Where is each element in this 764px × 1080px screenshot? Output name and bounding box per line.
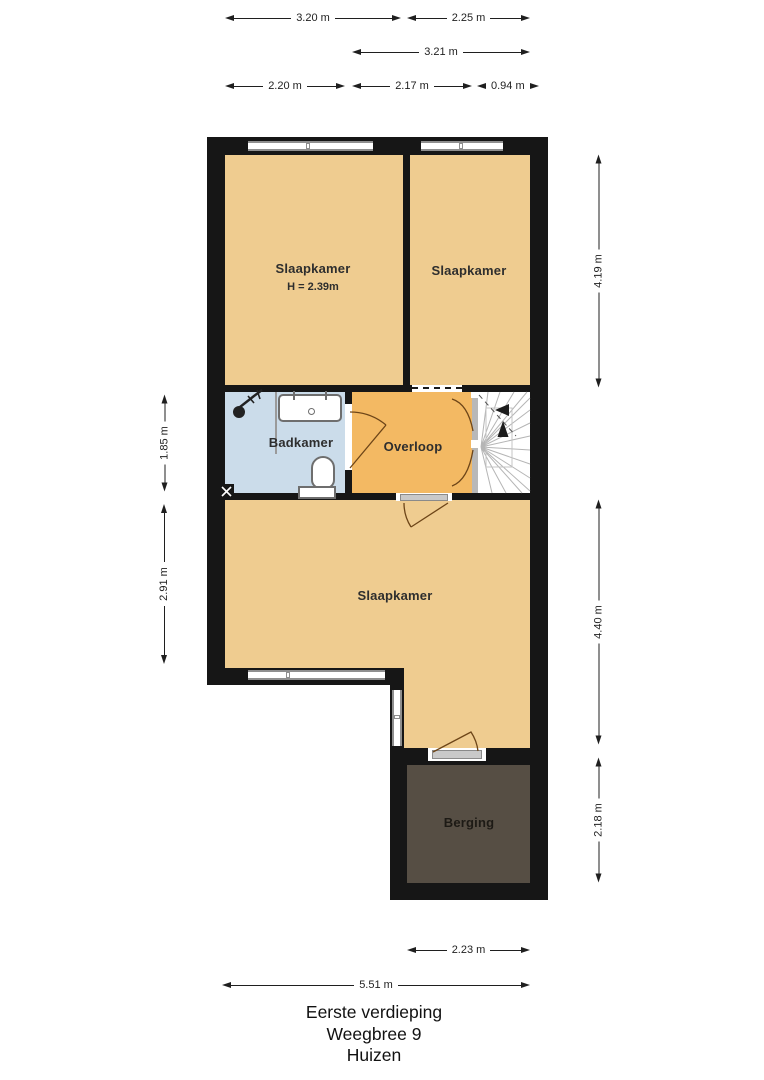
- dim-line: [335, 18, 392, 19]
- arrow-left-icon: [161, 655, 167, 664]
- dim-bottom-5-51: 5.51 m: [222, 978, 530, 992]
- window-mullion: [394, 715, 400, 719]
- window-mullion: [286, 672, 290, 678]
- dim-line: [598, 766, 599, 798]
- slaapkamer-3-door-threshold: [400, 494, 448, 501]
- dim-top-3-21: 3.21 m: [352, 45, 530, 59]
- dashed-opening-line: [412, 387, 462, 389]
- dim-line: [164, 465, 165, 483]
- city-line: Huizen: [306, 1045, 442, 1067]
- faucet-icon: [293, 391, 295, 400]
- dim-line: [164, 513, 165, 562]
- room-label-slaapkamer-2: Slaapkamer: [432, 263, 507, 278]
- drain-icon: [308, 408, 315, 415]
- window-slaapkamer-3: [248, 670, 385, 680]
- arrow-right-icon: [596, 154, 602, 163]
- dim-label: 2.23 m: [447, 944, 491, 956]
- dim-right-4-19: 4.19 m: [592, 155, 606, 388]
- dim-right-4-40: 4.40 m: [592, 500, 606, 745]
- dim-label: 2.20 m: [263, 80, 307, 92]
- room-height-note: H = 2.39m: [287, 281, 339, 293]
- stair-door-jamb: [471, 440, 479, 448]
- window-slaapkamer-2: [421, 141, 503, 151]
- arrow-right-icon: [596, 499, 602, 508]
- floor-title: Eerste verdieping: [306, 1002, 442, 1024]
- toilet-cistern: [298, 486, 336, 499]
- dim-line: [598, 842, 599, 874]
- arrow-left-icon: [596, 379, 602, 388]
- arrow-right-icon: [336, 83, 345, 89]
- dim-label: 0.94 m: [486, 80, 530, 92]
- dim-bottom-2-23: 2.23 m: [407, 943, 530, 957]
- sink-icon: [278, 394, 342, 422]
- room-label-slaapkamer-1: Slaapkamer: [276, 261, 351, 276]
- dim-label: 3.21 m: [419, 46, 463, 58]
- dim-line: [598, 508, 599, 600]
- badkamer-door-opening: [345, 404, 352, 470]
- arrow-left-icon: [407, 15, 416, 21]
- arrow-right-icon: [162, 394, 168, 403]
- dim-line: [598, 163, 599, 249]
- dim-line: [307, 86, 336, 87]
- dim-line: [416, 950, 447, 951]
- arrow-left-icon: [352, 49, 361, 55]
- toilet-icon: [311, 456, 335, 489]
- extractor-icon: [219, 484, 234, 499]
- dim-label: 3.20 m: [291, 12, 335, 24]
- arrow-right-icon: [521, 49, 530, 55]
- berging-door-threshold: [432, 750, 482, 759]
- dim-line: [234, 18, 291, 19]
- dim-label: 1.85 m: [159, 421, 171, 465]
- dim-top-2-25: 2.25 m: [407, 11, 530, 25]
- window-slaapkamer-1: [248, 141, 373, 151]
- dim-label: 5.51 m: [354, 979, 398, 991]
- arrow-left-icon: [596, 874, 602, 883]
- overloop-open-connection: [412, 385, 462, 392]
- room-slaapkamer-3-extension-floor: [404, 668, 530, 748]
- arrow-right-icon: [521, 947, 530, 953]
- dim-line: [164, 403, 165, 421]
- room-label-slaapkamer-3: Slaapkamer: [358, 588, 433, 603]
- dim-left-1-85: 1.85 m: [158, 395, 172, 492]
- arrow-left-icon: [162, 483, 168, 492]
- dim-right-2-18: 2.18 m: [592, 758, 606, 883]
- dim-top-2-20: 2.20 m: [225, 79, 345, 93]
- dim-top-2-17: 2.17 m: [352, 79, 472, 93]
- arrow-right-icon: [521, 982, 530, 988]
- room-label-overloop: Overloop: [384, 439, 443, 454]
- dim-line: [231, 985, 354, 986]
- dim-line: [490, 950, 521, 951]
- arrow-left-icon: [596, 736, 602, 745]
- arrow-right-icon: [463, 83, 472, 89]
- window-slaapkamer-3-side: [392, 690, 402, 746]
- arrow-left-icon: [225, 83, 234, 89]
- arrow-right-icon: [392, 15, 401, 21]
- arrow-left-icon: [222, 982, 231, 988]
- dim-line: [490, 18, 521, 19]
- window-mullion: [306, 143, 310, 149]
- arrow-left-icon: [225, 15, 234, 21]
- dim-line: [598, 644, 599, 736]
- title-block: Eerste verdieping Weegbree 9 Huizen: [306, 1002, 442, 1067]
- arrow-left-icon: [352, 83, 361, 89]
- room-label-berging: Berging: [444, 815, 495, 830]
- stair-door-jamb: [471, 392, 479, 398]
- dim-label: 2.18 m: [593, 798, 605, 842]
- dim-line: [398, 985, 521, 986]
- dim-label: 4.19 m: [593, 249, 605, 293]
- extractor-cross: [219, 484, 234, 499]
- dim-label: 2.17 m: [390, 80, 434, 92]
- dim-line: [361, 52, 419, 53]
- arrow-left-icon: [477, 83, 486, 89]
- dim-line: [598, 293, 599, 379]
- faucet-icon: [325, 391, 327, 400]
- address-line: Weegbree 9: [306, 1024, 442, 1046]
- dim-top-0-94: 0.94 m: [477, 79, 530, 93]
- dim-top-3-20: 3.20 m: [225, 11, 401, 25]
- room-label-badkamer: Badkamer: [269, 435, 333, 450]
- room-slaapkamer-3-floor: [225, 500, 530, 668]
- dim-line: [463, 52, 521, 53]
- arrow-right-icon: [596, 757, 602, 766]
- window-mullion: [459, 143, 463, 149]
- dim-line: [164, 606, 165, 655]
- staircase-area: [478, 392, 530, 493]
- dim-label: 2.91 m: [158, 562, 170, 606]
- arrow-right-icon: [161, 504, 167, 513]
- dim-label: 4.40 m: [593, 600, 605, 644]
- floorplan-canvas: Slaapkamer H = 2.39m Slaapkamer Badkamer…: [0, 0, 764, 1080]
- dim-line: [416, 18, 447, 19]
- arrow-left-icon: [407, 947, 416, 953]
- dim-line: [434, 86, 463, 87]
- dim-left-2-91: 2.91 m: [157, 504, 171, 664]
- dim-line: [361, 86, 390, 87]
- dim-line: [234, 86, 263, 87]
- dim-label: 2.25 m: [447, 12, 491, 24]
- arrow-right-icon: [521, 15, 530, 21]
- arrow-right-icon: [530, 83, 539, 89]
